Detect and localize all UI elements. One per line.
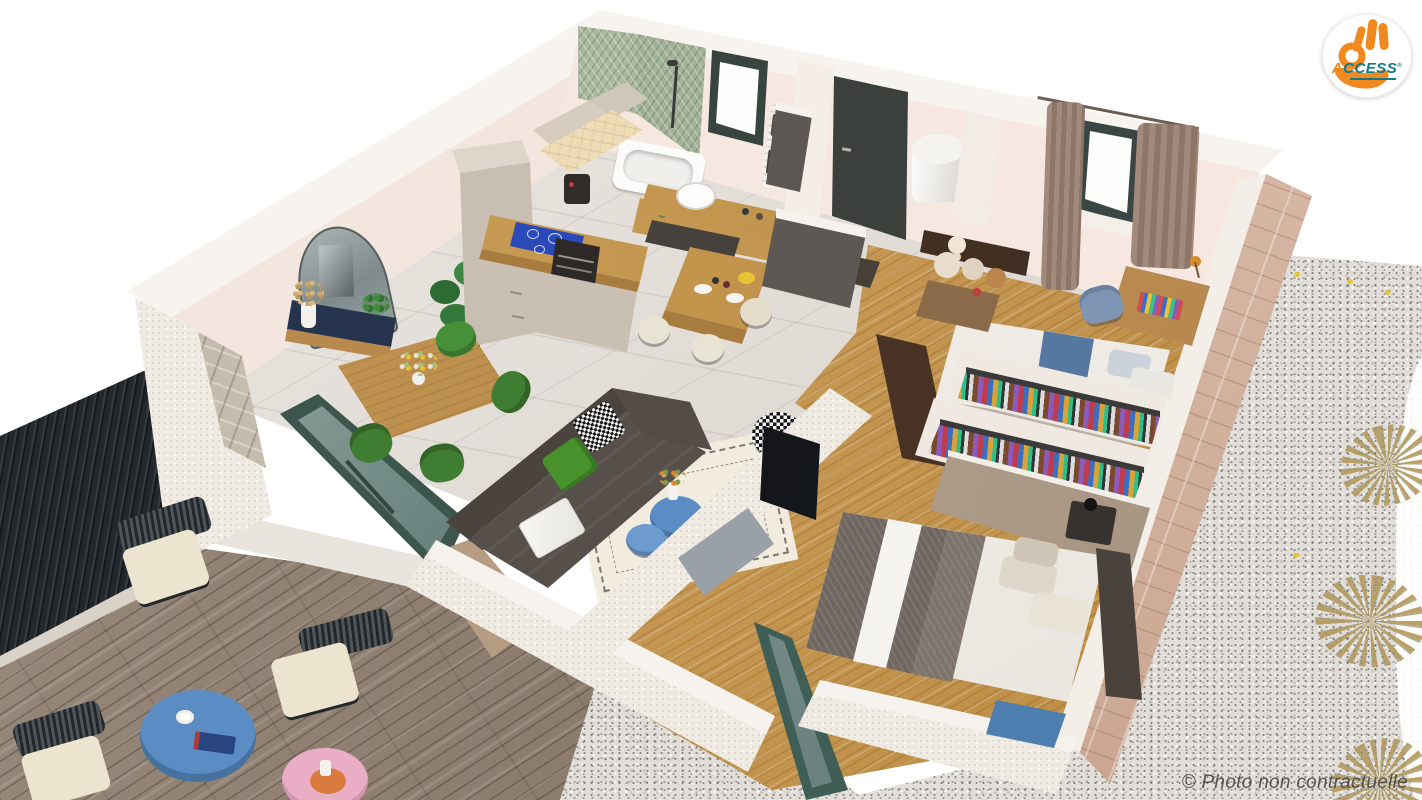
teddy-bear-brown bbox=[986, 268, 1006, 288]
logo-wordmark: ACCESS® bbox=[1322, 60, 1412, 77]
bar-plate bbox=[726, 293, 744, 303]
yellow-flower bbox=[1294, 272, 1300, 277]
wash-basin bbox=[676, 182, 716, 210]
logo-underline bbox=[1350, 78, 1396, 80]
water-heater-top bbox=[912, 134, 964, 164]
logo-rest: CCESS bbox=[1343, 60, 1397, 77]
access-logo: ACCESS® bbox=[1322, 14, 1412, 98]
yellow-flower bbox=[1347, 279, 1353, 284]
teddy-bear bbox=[962, 258, 984, 280]
ok-hand-icon bbox=[1322, 14, 1412, 98]
fruit-bowl bbox=[738, 272, 755, 284]
curtain-right bbox=[1130, 122, 1199, 269]
vanity-item bbox=[756, 213, 763, 220]
coffee-mug bbox=[176, 710, 194, 724]
teddy-heart bbox=[973, 288, 981, 296]
photo-disclaimer-caption: © Photo non contractuelle bbox=[1182, 772, 1408, 794]
hob-ring bbox=[534, 245, 545, 254]
vanity-item bbox=[742, 208, 749, 215]
logo-initial: A bbox=[1332, 60, 1343, 77]
bar-plate bbox=[694, 284, 712, 294]
teddy-bear bbox=[934, 252, 960, 278]
teddy-bear bbox=[948, 236, 966, 254]
yellow-flower bbox=[1293, 553, 1299, 558]
shelf-plant bbox=[362, 293, 390, 315]
bar-cup bbox=[712, 277, 719, 284]
dried-flowers bbox=[292, 280, 324, 306]
coffee-machine bbox=[564, 174, 590, 204]
shower-head bbox=[667, 60, 678, 66]
dining-flowers bbox=[398, 350, 438, 376]
floorplan-3d-render: ACCESS® © Photo non contractuelle bbox=[0, 0, 1422, 800]
bedside-lamp bbox=[1084, 498, 1097, 511]
yellow-flower bbox=[1385, 290, 1390, 295]
bar-stool bbox=[638, 316, 670, 344]
table-flowers bbox=[658, 468, 686, 486]
bar-cup bbox=[723, 281, 730, 288]
hob-ring bbox=[527, 229, 539, 239]
bar-stool bbox=[740, 298, 772, 326]
bar-stool bbox=[692, 334, 724, 362]
registered-mark: ® bbox=[1397, 63, 1402, 69]
curtain-left bbox=[1041, 101, 1086, 290]
candle bbox=[320, 760, 331, 776]
